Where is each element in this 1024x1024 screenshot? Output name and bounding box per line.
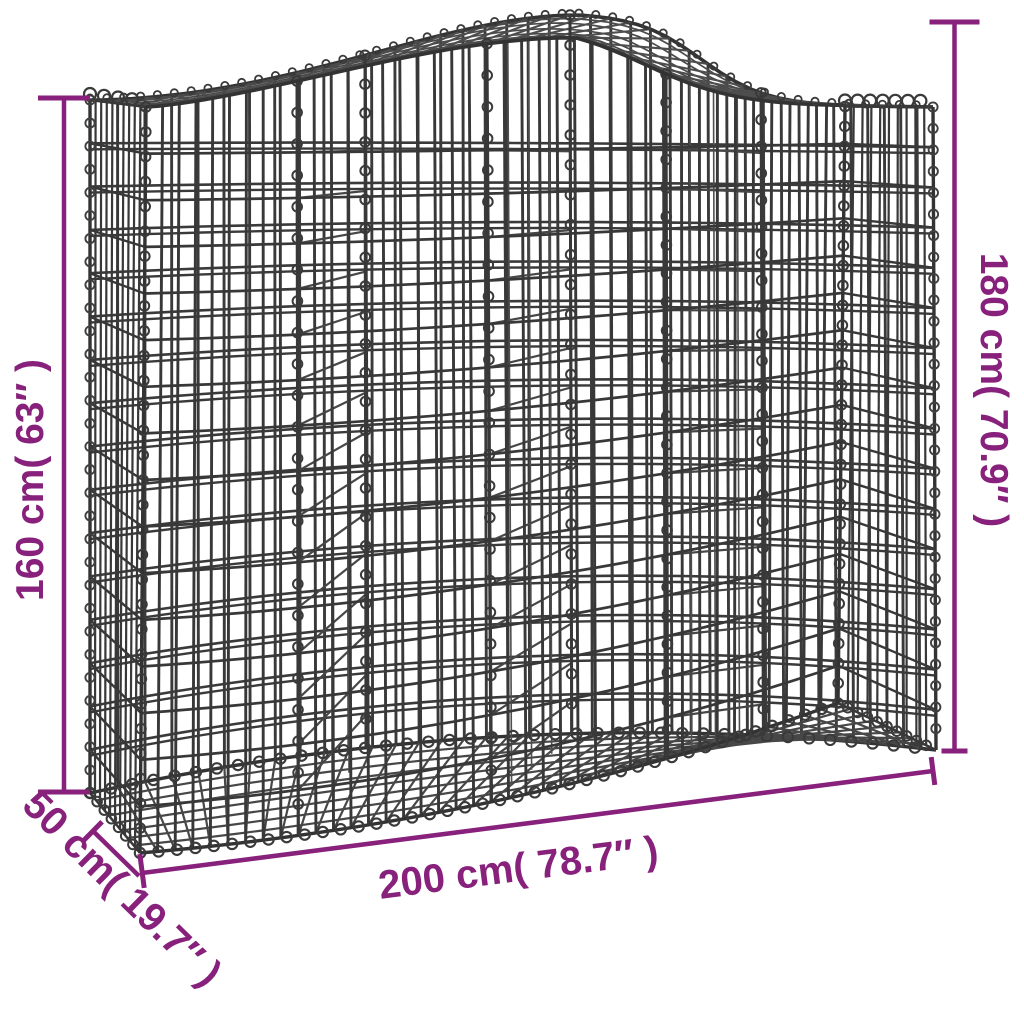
svg-text:180 cm( 70.9″ ): 180 cm( 70.9″ ) — [972, 253, 1015, 528]
svg-text:160 cm( 63″ ): 160 cm( 63″ ) — [9, 359, 52, 601]
svg-text:200 cm( 78.7″ ): 200 cm( 78.7″ ) — [376, 828, 661, 907]
